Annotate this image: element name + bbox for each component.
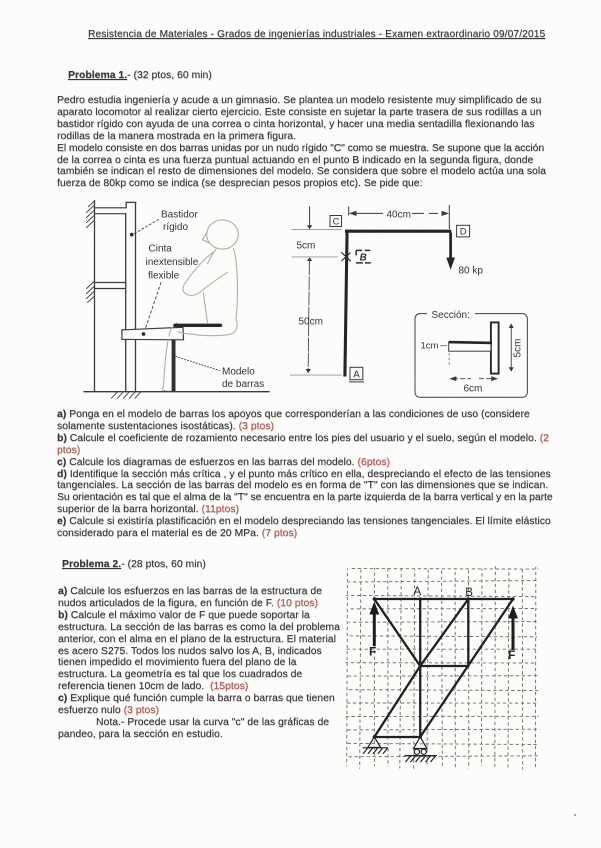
svg-text:de barras: de barras (222, 379, 264, 390)
svg-text:1cm: 1cm (421, 341, 439, 352)
svg-text:flexible: flexible (148, 271, 180, 282)
svg-text:B: B (465, 587, 473, 599)
svg-text:inextensible: inextensible (146, 257, 199, 268)
svg-text:Bastidor: Bastidor (161, 210, 198, 221)
svg-text:B: B (360, 253, 367, 264)
svg-text:D: D (460, 227, 467, 238)
svg-text:Sección:: Sección: (432, 310, 470, 321)
svg-text:C: C (333, 216, 340, 227)
svg-text:Modelo: Modelo (222, 367, 255, 378)
svg-text:40cm: 40cm (387, 210, 411, 221)
svg-text:A: A (353, 369, 360, 380)
svg-text:Cinta: Cinta (149, 244, 173, 255)
svg-text:6cm: 6cm (464, 384, 483, 395)
svg-text:80 kp: 80 kp (459, 266, 484, 277)
svg-text:rígido: rígido (163, 222, 188, 233)
svg-text:F: F (508, 648, 515, 662)
svg-text:5cm: 5cm (297, 240, 316, 251)
svg-text:A: A (414, 586, 422, 598)
svg-text:F: F (369, 645, 376, 659)
svg-text:50cm: 50cm (299, 317, 323, 328)
svg-text:5cm: 5cm (513, 339, 524, 358)
